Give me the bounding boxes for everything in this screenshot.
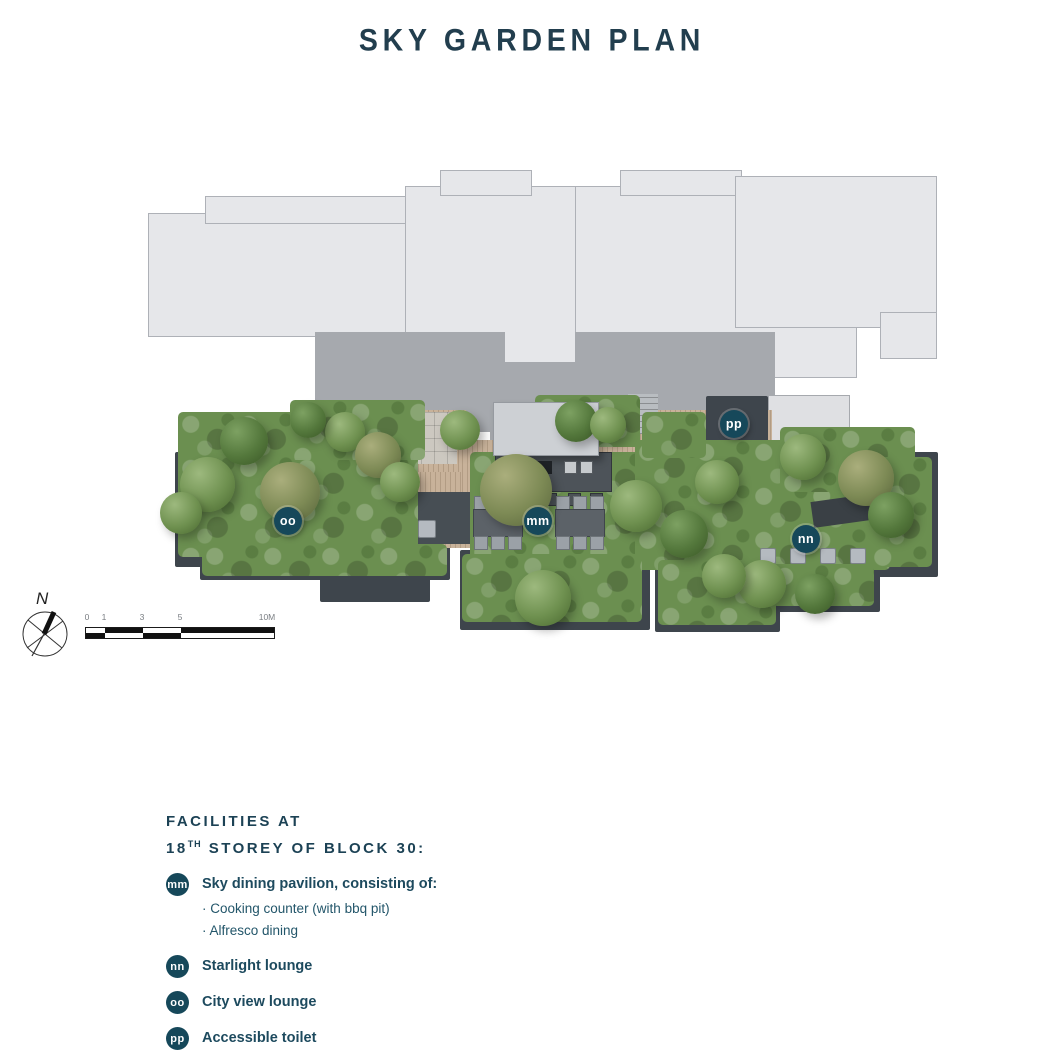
tree xyxy=(795,574,835,614)
scale-bar: 0 1 3 5 10M xyxy=(85,612,273,644)
planting-bed xyxy=(642,412,706,458)
tree xyxy=(590,407,626,443)
legend-label: Starlight lounge xyxy=(202,955,312,978)
legend-sublist: Cooking counter (with bbq pit) Alfresco … xyxy=(202,898,626,942)
building-footprint xyxy=(440,170,532,196)
tree xyxy=(160,492,202,534)
legend-item-oo: oo City view lounge xyxy=(166,991,626,1014)
scale-tick: 0 xyxy=(85,612,90,622)
scale-tick: 3 xyxy=(140,612,145,622)
building-footprint xyxy=(148,213,427,337)
building-footprint xyxy=(735,176,937,328)
lounge-chair xyxy=(850,548,866,564)
compass-north-label: N xyxy=(36,589,49,608)
building-footprint xyxy=(880,312,937,359)
dining-table xyxy=(552,496,608,548)
facilities-legend: FACILITIES AT 18THSTOREY OF BLOCK 30: mm… xyxy=(166,810,626,1050)
tree xyxy=(610,480,662,532)
legend-heading-line1: FACILITIES AT xyxy=(166,810,626,833)
marker-mm: mm xyxy=(524,507,552,535)
building-footprint xyxy=(205,196,425,224)
tree xyxy=(868,492,914,538)
tree xyxy=(780,434,826,480)
tree xyxy=(380,462,420,502)
scale-tick: 5 xyxy=(178,612,183,622)
tree xyxy=(515,570,571,626)
scale-tick: 10M xyxy=(259,612,276,622)
legend-label: Accessible toilet xyxy=(202,1027,316,1050)
legend-heading-line2: 18THSTOREY OF BLOCK 30: xyxy=(166,833,626,860)
bbq-pit xyxy=(580,461,593,474)
badge-mm: mm xyxy=(166,873,189,896)
tree xyxy=(660,510,708,558)
legend-heading: FACILITIES AT 18THSTOREY OF BLOCK 30: xyxy=(166,810,626,860)
lounge-chair xyxy=(418,520,436,538)
legend-item-mm: mm Sky dining pavilion, consisting of: xyxy=(166,873,626,896)
legend-subitem: Alfresco dining xyxy=(202,920,626,942)
legend-label: Sky dining pavilion, consisting of: xyxy=(202,873,437,896)
marker-nn: nn xyxy=(792,525,820,553)
badge-oo: oo xyxy=(166,991,189,1014)
tree xyxy=(440,410,480,450)
badge-pp: pp xyxy=(166,1027,189,1050)
scale-tick: 1 xyxy=(102,612,107,622)
tree xyxy=(220,417,268,465)
badge-nn: nn xyxy=(166,955,189,978)
marker-oo: oo xyxy=(274,507,302,535)
tree xyxy=(290,402,326,438)
north-compass: N xyxy=(16,588,80,669)
legend-item-pp: pp Accessible toilet xyxy=(166,1027,626,1050)
legend-label: City view lounge xyxy=(202,991,316,1014)
planting-bed xyxy=(202,544,447,576)
legend-subitem: Cooking counter (with bbq pit) xyxy=(202,898,626,920)
page-title: SKY GARDEN PLAN xyxy=(27,23,1038,59)
tree xyxy=(695,460,739,504)
marker-pp: pp xyxy=(720,410,748,438)
bbq-pit xyxy=(564,461,577,474)
tree xyxy=(702,554,746,598)
lounge-chair xyxy=(820,548,836,564)
tree xyxy=(738,560,786,608)
sky-garden-plan: mm nn oo pp xyxy=(140,162,940,640)
scale-bar-graphic xyxy=(85,627,275,639)
legend-item-nn: nn Starlight lounge xyxy=(166,955,626,978)
building-footprint xyxy=(620,170,742,196)
